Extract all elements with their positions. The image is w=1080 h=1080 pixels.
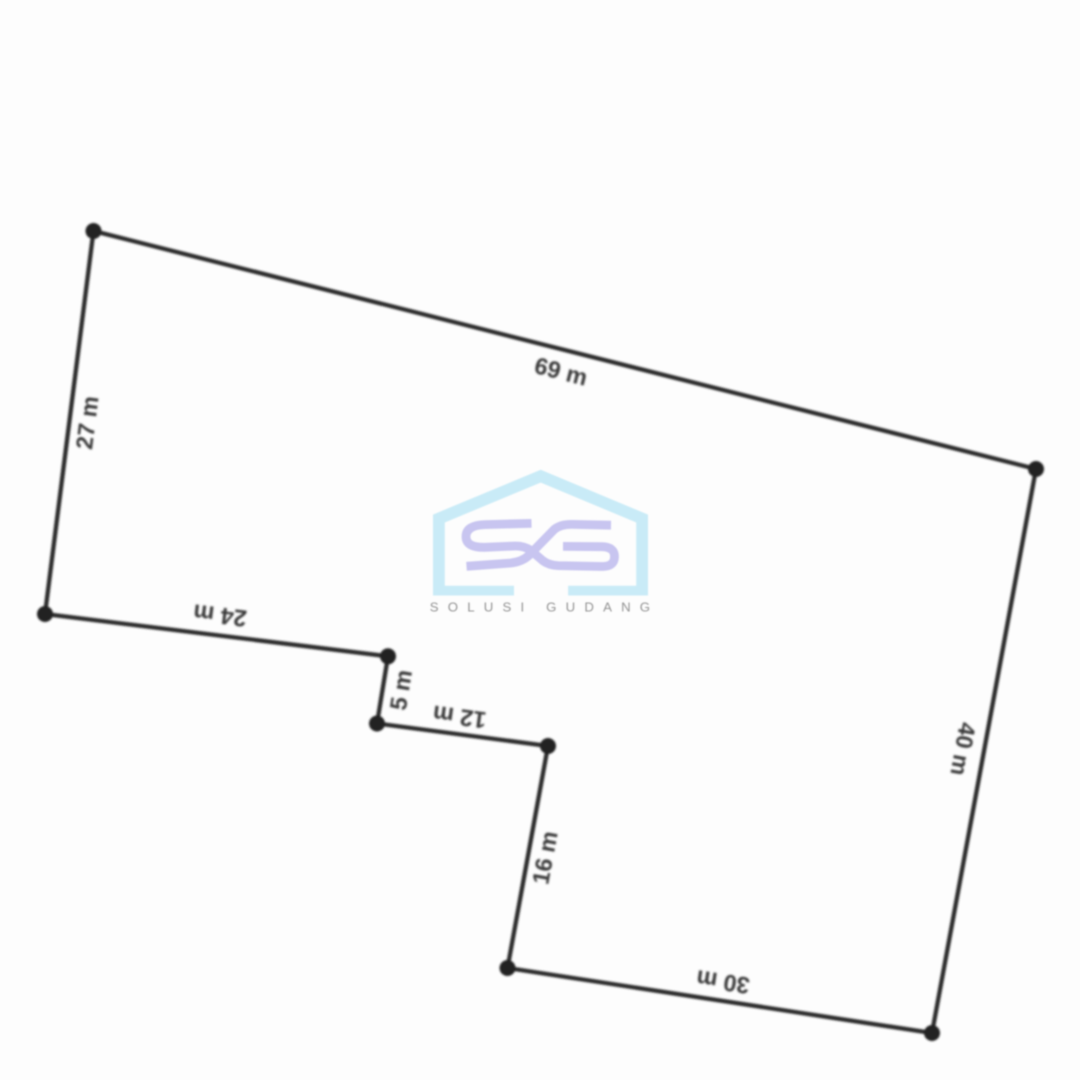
svg-text:SOLUSI GUDANG: SOLUSI GUDANG <box>430 600 660 615</box>
